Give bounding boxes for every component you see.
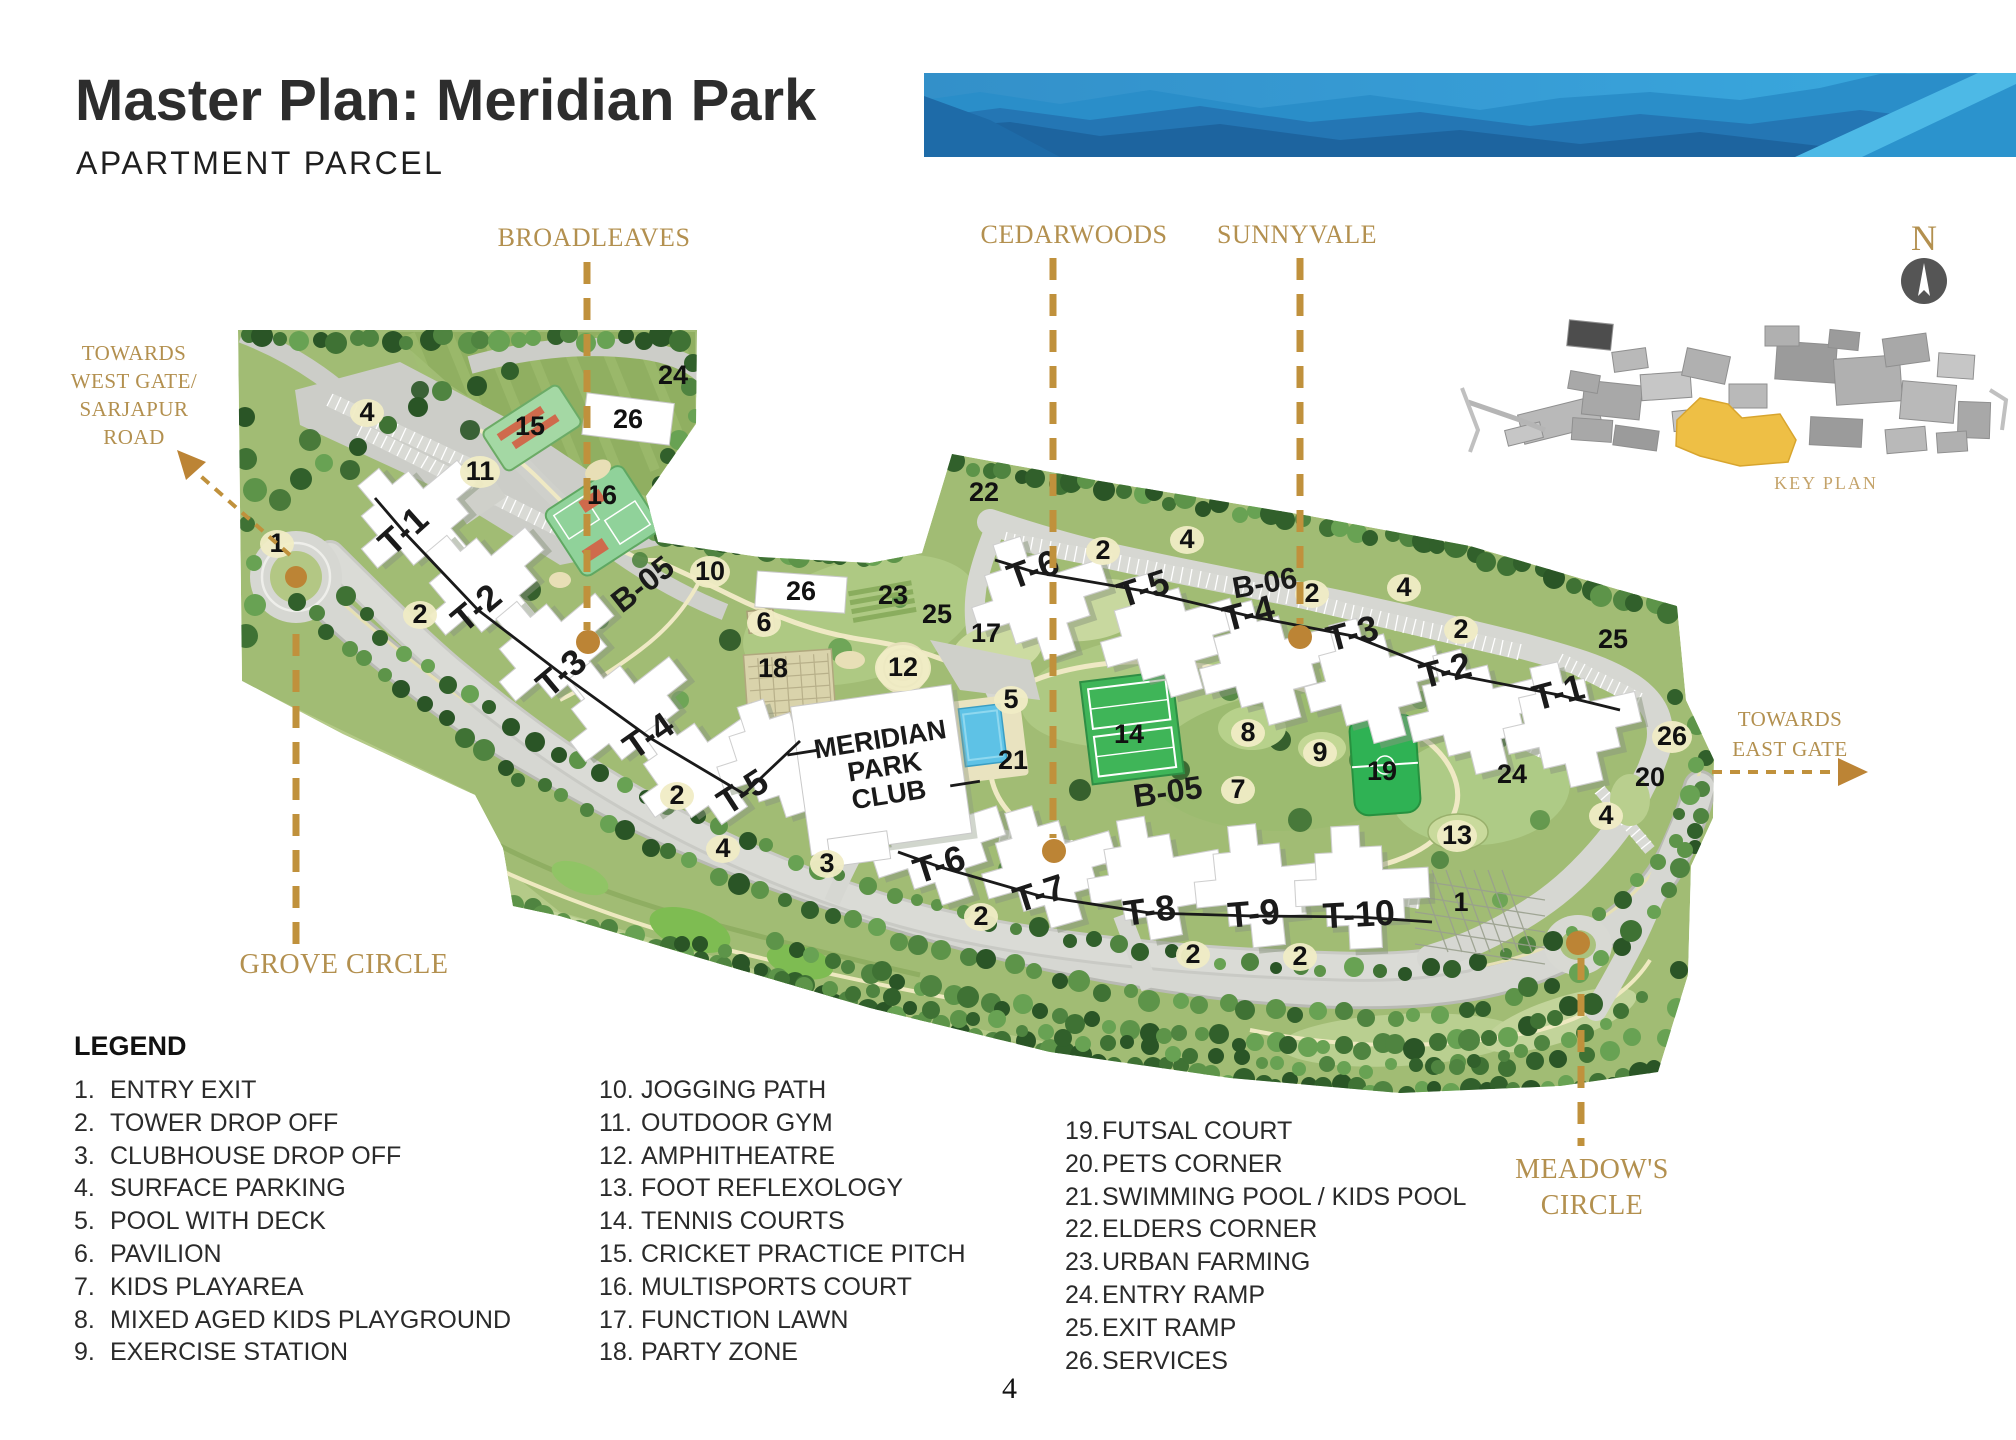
svg-text:4: 4 <box>1179 524 1194 554</box>
svg-text:20: 20 <box>1635 762 1665 792</box>
svg-text:GROVE CIRCLE: GROVE CIRCLE <box>240 949 449 980</box>
svg-text:CEDARWOODS: CEDARWOODS <box>980 220 1167 249</box>
svg-text:CIRCLE: CIRCLE <box>1541 1190 1644 1221</box>
svg-text:26: 26 <box>1657 721 1687 751</box>
svg-text:4: 4 <box>1598 800 1613 830</box>
svg-text:WEST GATE/: WEST GATE/ <box>71 369 198 393</box>
svg-text:25: 25 <box>922 599 952 629</box>
svg-text:SERVICES: SERVICES <box>1102 1347 1228 1375</box>
svg-text:TENNIS COURTS: TENNIS COURTS <box>641 1207 845 1235</box>
svg-text:14: 14 <box>1114 719 1144 749</box>
svg-text:7: 7 <box>1230 774 1245 804</box>
svg-text:SUNNYVALE: SUNNYVALE <box>1217 220 1377 249</box>
svg-text:21: 21 <box>998 745 1028 775</box>
svg-text:5: 5 <box>1003 684 1018 714</box>
svg-text:9: 9 <box>1312 737 1327 767</box>
svg-text:8.: 8. <box>74 1306 95 1334</box>
svg-text:SWIMMING POOL / KIDS POOL: SWIMMING POOL / KIDS POOL <box>1102 1183 1467 1211</box>
svg-text:18.: 18. <box>599 1338 634 1366</box>
svg-text:2: 2 <box>412 599 427 629</box>
svg-text:20.: 20. <box>1065 1150 1100 1178</box>
svg-text:LEGEND: LEGEND <box>74 1031 187 1061</box>
svg-text:EAST GATE: EAST GATE <box>1732 737 1848 761</box>
svg-text:URBAN FARMING: URBAN FARMING <box>1102 1248 1310 1276</box>
svg-text:KEY PLAN: KEY PLAN <box>1774 473 1878 493</box>
svg-text:13: 13 <box>1442 820 1472 850</box>
svg-text:12.: 12. <box>599 1142 634 1170</box>
svg-text:10.: 10. <box>599 1076 634 1104</box>
svg-text:PARTY ZONE: PARTY ZONE <box>641 1338 798 1366</box>
svg-text:23: 23 <box>878 580 908 610</box>
svg-text:Master Plan: Meridian Park: Master Plan: Meridian Park <box>75 68 817 133</box>
svg-text:SURFACE PARKING: SURFACE PARKING <box>110 1174 346 1202</box>
svg-text:23.: 23. <box>1065 1248 1100 1276</box>
svg-text:6: 6 <box>756 607 771 637</box>
svg-text:26: 26 <box>613 404 643 434</box>
svg-text:25: 25 <box>1598 624 1628 654</box>
svg-text:1: 1 <box>1453 887 1468 917</box>
svg-text:CLUBHOUSE DROP OFF: CLUBHOUSE DROP OFF <box>110 1142 401 1170</box>
svg-text:CRICKET PRACTICE PITCH: CRICKET PRACTICE PITCH <box>641 1240 966 1268</box>
svg-text:4: 4 <box>359 397 374 427</box>
svg-text:4: 4 <box>1002 1372 1017 1405</box>
svg-text:13.: 13. <box>599 1174 634 1202</box>
svg-text:BROADLEAVES: BROADLEAVES <box>498 223 691 252</box>
svg-text:4: 4 <box>715 833 730 863</box>
svg-text:2: 2 <box>1095 535 1110 565</box>
svg-text:1.: 1. <box>74 1076 95 1104</box>
svg-text:FUTSAL COURT: FUTSAL COURT <box>1102 1117 1292 1145</box>
svg-text:SARJAPUR: SARJAPUR <box>79 397 188 421</box>
svg-text:3.: 3. <box>74 1142 95 1170</box>
svg-text:2: 2 <box>1292 941 1307 971</box>
svg-text:KIDS PLAYAREA: KIDS PLAYAREA <box>110 1273 304 1301</box>
svg-text:14.: 14. <box>599 1207 634 1235</box>
svg-text:11.: 11. <box>599 1109 632 1137</box>
svg-text:12: 12 <box>888 652 918 682</box>
svg-text:10: 10 <box>695 556 725 586</box>
svg-text:2: 2 <box>973 901 988 931</box>
svg-text:15.: 15. <box>599 1240 634 1268</box>
svg-text:FUNCTION LAWN: FUNCTION LAWN <box>641 1306 848 1334</box>
svg-text:T-10: T-10 <box>1322 892 1396 937</box>
svg-text:17.: 17. <box>599 1306 634 1334</box>
svg-text:6.: 6. <box>74 1240 95 1268</box>
svg-text:9.: 9. <box>74 1338 95 1366</box>
svg-text:16.: 16. <box>599 1273 634 1301</box>
svg-text:24.: 24. <box>1065 1281 1100 1309</box>
svg-text:MULTISPORTS COURT: MULTISPORTS COURT <box>641 1273 912 1301</box>
svg-text:APARTMENT PARCEL: APARTMENT PARCEL <box>76 145 444 181</box>
svg-text:POOL WITH DECK: POOL WITH DECK <box>110 1207 326 1235</box>
svg-text:PAVILION: PAVILION <box>110 1240 222 1268</box>
svg-text:ENTRY EXIT: ENTRY EXIT <box>110 1076 256 1104</box>
svg-text:T-8: T-8 <box>1121 886 1178 934</box>
svg-text:N: N <box>1911 218 1937 258</box>
svg-text:TOWER DROP OFF: TOWER DROP OFF <box>110 1109 338 1137</box>
svg-text:4.: 4. <box>74 1174 95 1202</box>
svg-text:21.: 21. <box>1065 1183 1100 1211</box>
svg-text:7.: 7. <box>74 1273 95 1301</box>
svg-text:2: 2 <box>1453 614 1468 644</box>
svg-text:24: 24 <box>658 360 688 390</box>
svg-text:T-9: T-9 <box>1226 890 1281 935</box>
svg-text:TOWARDS: TOWARDS <box>82 341 187 365</box>
svg-text:22.: 22. <box>1065 1215 1100 1243</box>
svg-text:18: 18 <box>758 653 788 683</box>
svg-text:FOOT REFLEXOLOGY: FOOT REFLEXOLOGY <box>641 1174 903 1202</box>
svg-text:11: 11 <box>466 456 495 486</box>
svg-text:2.: 2. <box>74 1109 95 1137</box>
svg-text:19: 19 <box>1367 756 1397 786</box>
svg-text:24: 24 <box>1497 759 1527 789</box>
svg-text:17: 17 <box>971 618 1001 648</box>
svg-text:2: 2 <box>1304 578 1319 608</box>
svg-text:JOGGING PATH: JOGGING PATH <box>641 1076 826 1104</box>
svg-text:15: 15 <box>515 411 545 441</box>
svg-text:2: 2 <box>669 780 684 810</box>
svg-text:PETS CORNER: PETS CORNER <box>1102 1150 1283 1178</box>
svg-text:3: 3 <box>819 848 834 878</box>
svg-text:26.: 26. <box>1065 1347 1100 1375</box>
svg-text:EXERCISE STATION: EXERCISE STATION <box>110 1338 348 1366</box>
svg-text:4: 4 <box>1396 572 1411 602</box>
svg-text:ROAD: ROAD <box>103 425 165 449</box>
svg-text:25.: 25. <box>1065 1314 1100 1342</box>
svg-text:TOWARDS: TOWARDS <box>1738 707 1843 731</box>
svg-text:ELDERS CORNER: ELDERS CORNER <box>1102 1215 1317 1243</box>
svg-text:ENTRY RAMP: ENTRY RAMP <box>1102 1281 1265 1309</box>
svg-text:16: 16 <box>587 480 617 510</box>
svg-text:EXIT RAMP: EXIT RAMP <box>1102 1314 1236 1342</box>
svg-text:19.: 19. <box>1065 1117 1100 1145</box>
svg-text:OUTDOOR GYM: OUTDOOR GYM <box>641 1109 833 1137</box>
svg-text:1: 1 <box>269 528 284 558</box>
svg-text:26: 26 <box>786 576 816 606</box>
svg-text:2: 2 <box>1185 939 1200 969</box>
svg-text:MEADOW'S: MEADOW'S <box>1515 1154 1669 1185</box>
svg-text:22: 22 <box>969 477 999 507</box>
svg-text:MIXED AGED KIDS PLAYGROUND: MIXED AGED KIDS PLAYGROUND <box>110 1306 511 1334</box>
svg-text:AMPHITHEATRE: AMPHITHEATRE <box>641 1142 835 1170</box>
svg-text:8: 8 <box>1240 717 1255 747</box>
svg-text:5.: 5. <box>74 1207 95 1235</box>
